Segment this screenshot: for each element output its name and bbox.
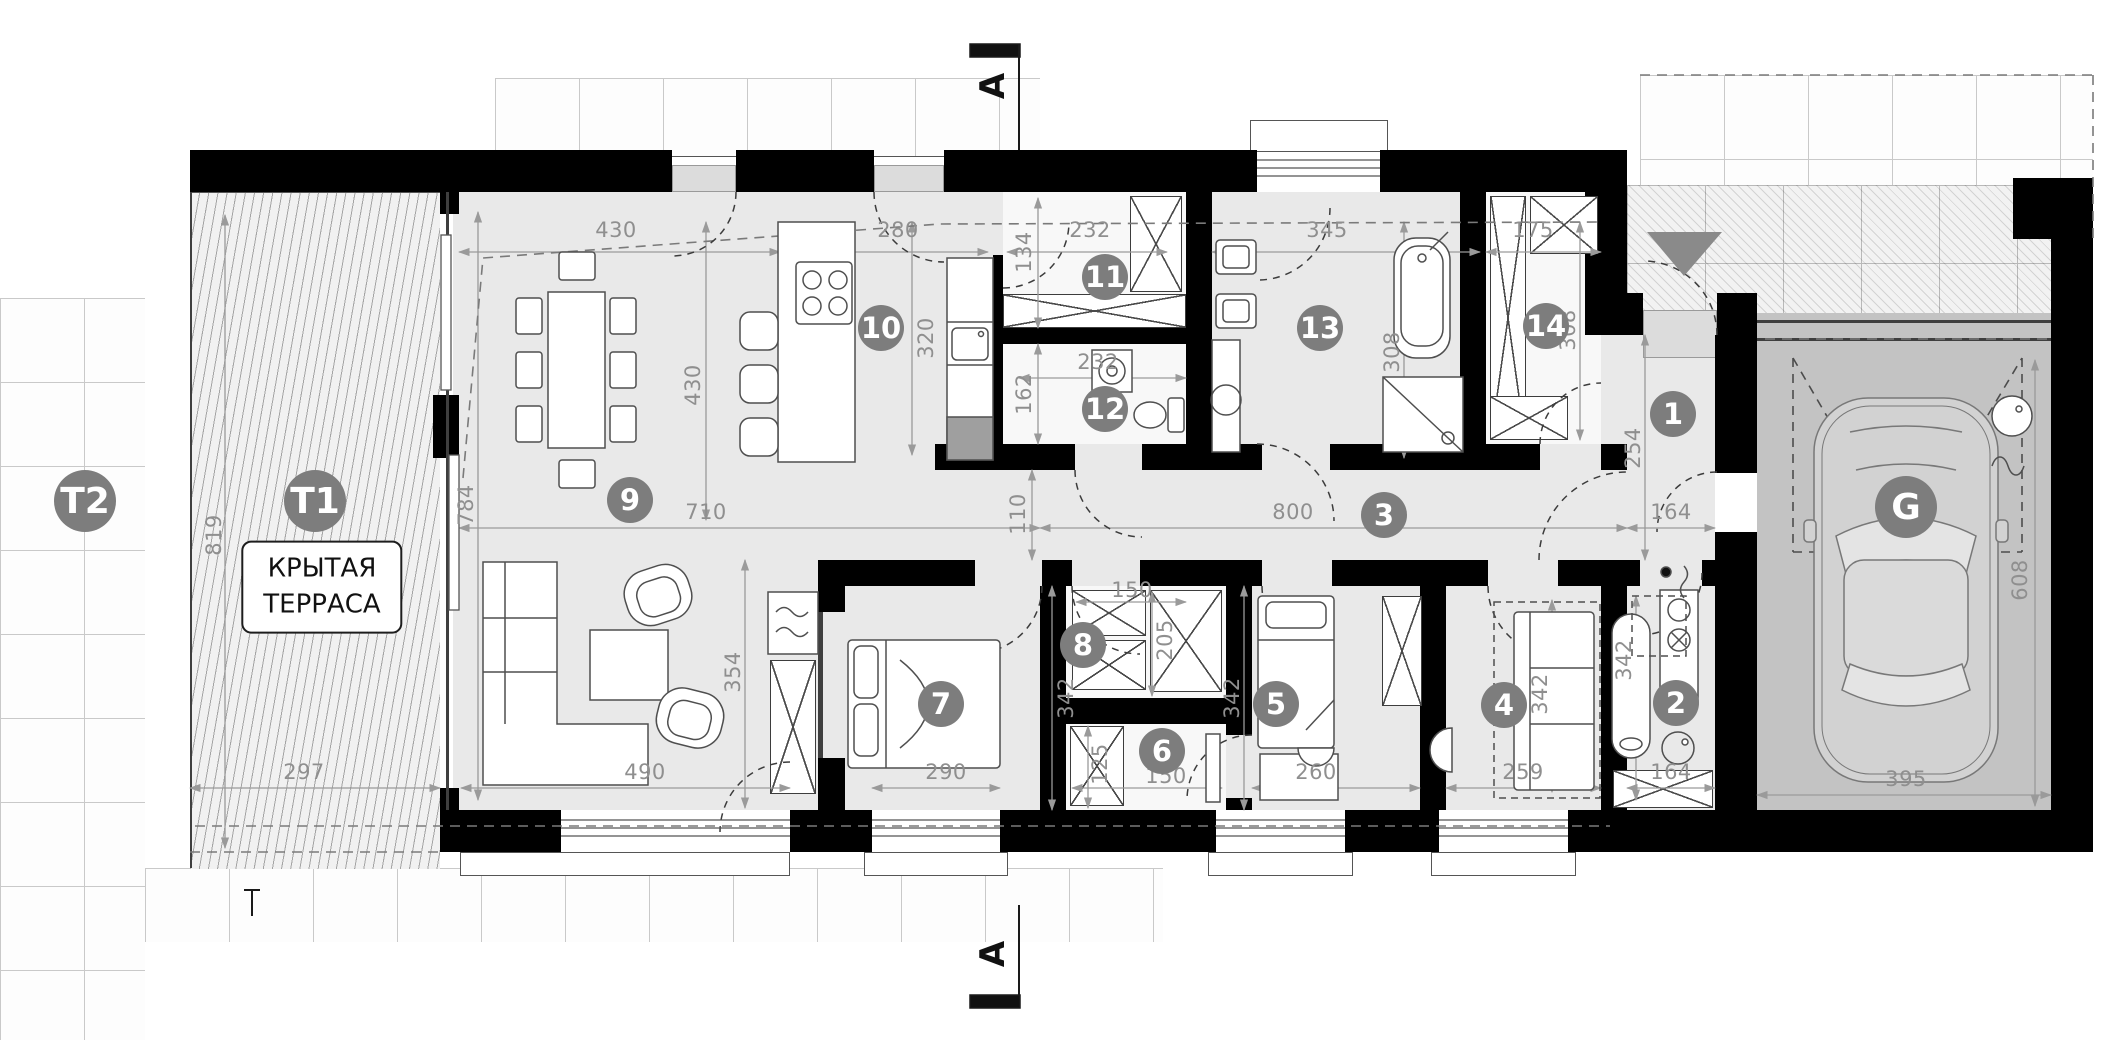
room-number: 9 — [620, 483, 640, 517]
dim-label: 164 — [1650, 500, 1692, 524]
room-badge-7: 7 — [918, 681, 964, 727]
kitchen-cabinets — [947, 258, 993, 460]
dim-label: 430 — [595, 218, 637, 242]
entrance-marker — [1647, 232, 1722, 276]
section-marker-bottom: A — [973, 941, 1013, 967]
dim-label: 134 — [1012, 231, 1036, 273]
dim-label: 254 — [1621, 427, 1645, 469]
room-badge-4: 4 — [1481, 682, 1527, 728]
room-number: 3 — [1374, 498, 1394, 532]
dim-label: 395 — [1885, 767, 1927, 791]
dim-label: 308 — [1380, 331, 1404, 373]
dim-label: 175 — [1512, 218, 1554, 242]
terrace-badge-t2: T2 — [54, 470, 116, 532]
zone-label: T2 — [60, 481, 110, 522]
dim-label: 259 — [1502, 760, 1544, 784]
room-number: 4 — [1494, 688, 1514, 722]
dim-label: 320 — [914, 317, 938, 359]
kitchen-island — [740, 222, 855, 462]
room-number: 7 — [931, 687, 951, 721]
dim-label: 260 — [1295, 760, 1337, 784]
dim-label: 150 — [1111, 578, 1153, 602]
room-number: 8 — [1073, 628, 1093, 662]
level-mark — [244, 890, 260, 916]
room-number: 12 — [1085, 392, 1125, 426]
floor-plan: 1 2 3 4 5 6 7 8 9 10 11 12 13 14 T1 T2 G… — [0, 0, 2119, 1052]
dim-label: 342 — [1528, 673, 1552, 715]
room-badge-3: 3 — [1361, 492, 1407, 538]
room-badge-13: 13 — [1297, 305, 1343, 351]
dim-label: 342 — [1054, 677, 1078, 719]
room-number: 13 — [1300, 311, 1340, 345]
dim-label: 800 — [1272, 500, 1314, 524]
dim-label: 125 — [1088, 743, 1112, 785]
room-badge-11: 11 — [1082, 254, 1128, 300]
room-badge-9: 9 — [607, 477, 653, 523]
terrace-label-line2: ТЕРРАСА — [263, 587, 380, 623]
zone-label: G — [1891, 487, 1921, 528]
dim-label: 110 — [1006, 493, 1030, 535]
room-number: 2 — [1666, 686, 1686, 720]
terrace-badge-t1: T1 — [284, 470, 346, 532]
toilet — [1134, 398, 1184, 432]
fireplace — [768, 592, 818, 654]
dim-label: 232 — [1077, 350, 1119, 374]
room-number: 10 — [861, 311, 901, 345]
room-badge-2: 2 — [1653, 680, 1699, 726]
dim-label: 232 — [1069, 218, 1111, 242]
dim-label: 430 — [681, 364, 705, 406]
room-badge-12: 12 — [1082, 386, 1128, 432]
room-badge-14: 14 — [1523, 303, 1569, 349]
dim-label: 345 — [1306, 218, 1348, 242]
terrace-label-line1: КРЫТАЯ — [263, 551, 380, 587]
shower — [1383, 377, 1463, 452]
dim-label: 710 — [685, 500, 727, 524]
garage-badge: G — [1875, 476, 1937, 538]
zone-label: T1 — [290, 481, 340, 522]
dim-label: 342 — [1220, 677, 1244, 719]
dim-label: 280 — [877, 218, 919, 242]
dim-label: 354 — [721, 651, 745, 693]
room-badge-6: 6 — [1139, 728, 1185, 774]
dim-label: 205 — [1153, 619, 1177, 661]
bath-sinks — [1211, 240, 1256, 452]
room-number: 6 — [1152, 734, 1172, 768]
room-number: 5 — [1266, 687, 1286, 721]
section-marker-top: A — [973, 73, 1013, 99]
furniture — [244, 44, 2032, 1008]
dining-set — [516, 252, 636, 488]
roof-outline — [190, 75, 2093, 852]
room-badge-8: 8 — [1060, 622, 1106, 668]
room-badge-1: 1 — [1650, 391, 1696, 437]
room-number: 14 — [1526, 309, 1566, 343]
dim-label: 819 — [202, 514, 226, 556]
room-badge-10: 10 — [858, 305, 904, 351]
room-badge-5: 5 — [1253, 681, 1299, 727]
dim-label: 290 — [925, 760, 967, 784]
dim-label: 342 — [1612, 639, 1636, 681]
terrace-label-box: КРЫТАЯ ТЕРРАСА — [241, 541, 402, 634]
dim-label: 784 — [454, 484, 478, 526]
dim-label: 162 — [1012, 373, 1036, 415]
shelf — [1206, 734, 1220, 802]
dim-label: 297 — [283, 760, 325, 784]
room-number: 11 — [1085, 260, 1125, 294]
dim-label: 490 — [624, 760, 666, 784]
dim-label: 608 — [2008, 559, 2032, 601]
car — [1804, 398, 2008, 782]
room-number: 1 — [1663, 397, 1683, 431]
sofa-set — [483, 558, 729, 785]
dim-label: 164 — [1650, 760, 1692, 784]
